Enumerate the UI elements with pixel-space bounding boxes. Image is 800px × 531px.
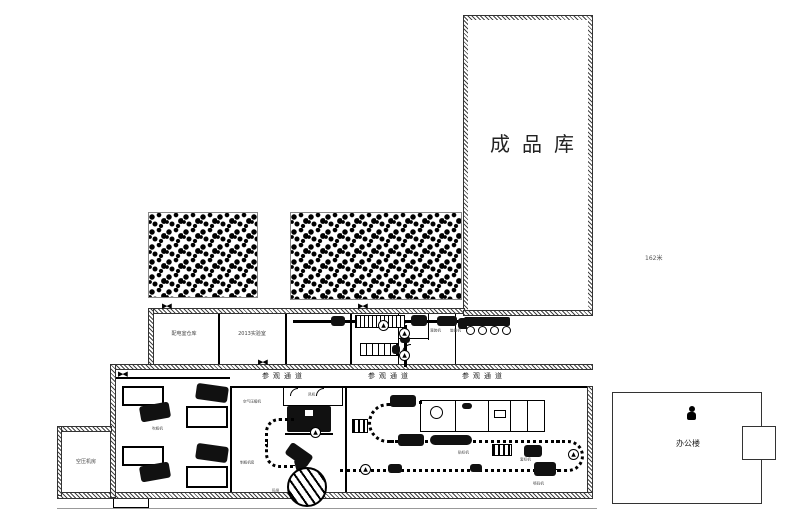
lowerhall-right-wall	[587, 386, 593, 498]
filling-block-divider	[527, 400, 528, 432]
line-machine-c	[430, 435, 472, 445]
filling-block-divider	[455, 400, 456, 432]
person-icon	[687, 412, 696, 420]
wing-top-wall	[57, 426, 112, 432]
coder-machine	[534, 462, 556, 476]
molding-machine-4-head	[195, 443, 229, 463]
direction-arrow-icon: ▲	[360, 464, 371, 475]
air-compressor-label: 空气压缩机	[243, 399, 261, 404]
filling-block-circle	[430, 406, 443, 419]
line-machine-d	[470, 464, 482, 472]
double-door-icon: ▶◀	[258, 359, 267, 366]
machinearea-top-wall	[116, 377, 230, 379]
partition-1	[218, 314, 220, 364]
landscaping-area-right	[290, 212, 462, 300]
lab-room-label: 2013实验室	[220, 330, 284, 337]
warehouse-bottom-wall	[463, 310, 593, 316]
molding-machine-2	[186, 406, 228, 428]
coder-label: 喷码机	[533, 481, 544, 486]
threshold-step	[113, 499, 149, 508]
truck-wheel	[478, 326, 487, 335]
midband-machine-1	[331, 316, 345, 326]
double-door-icon: ▶◀	[358, 303, 367, 310]
sleeve-machine	[524, 445, 542, 457]
line-machine-e	[388, 464, 402, 473]
midband-bottom-wall	[110, 364, 593, 370]
direction-arrow-icon: ▲	[310, 427, 321, 438]
filling-block-divider	[488, 400, 489, 432]
truck-wheel	[466, 326, 475, 335]
truck-wheel	[490, 326, 499, 335]
filling-block-divider	[510, 400, 511, 432]
truck-body	[464, 317, 510, 326]
dimension-note: 162米	[645, 253, 662, 262]
filling-block-unit	[462, 403, 472, 409]
palletizer-label: 码垛	[272, 488, 279, 493]
line-machine-b	[398, 434, 424, 446]
direction-arrow-icon: ▲	[399, 350, 410, 361]
corridor-label-1: 参观通道	[262, 371, 306, 381]
corridor-label-3: 参观通道	[462, 371, 506, 381]
midband-machine-3	[437, 316, 457, 326]
sleeve-machine-label: 套标机	[520, 457, 531, 462]
blowroom-right-wall	[345, 388, 347, 492]
office-annex	[742, 426, 776, 460]
midband-machine-2	[411, 315, 427, 326]
case-packer	[352, 419, 368, 433]
compressor-wing-label: 空压机房	[64, 458, 108, 465]
direction-arrow-icon: ▲	[399, 328, 410, 339]
fan-room-label: 风机	[308, 392, 315, 397]
blow-molding-room-label: 制瓶机房	[240, 460, 254, 465]
power-room-label: 配电室仓库	[152, 330, 216, 337]
filling-machine-label: 灌装机	[430, 328, 441, 333]
molding-machine-4	[186, 466, 228, 488]
palletizer-turntable	[287, 467, 327, 507]
labeling-machine	[492, 444, 512, 456]
labeling-machine-label: 贴标机	[458, 450, 469, 455]
machinearea-right-wall	[230, 388, 232, 492]
warehouse-interior	[468, 20, 588, 310]
compressor-unit-panel	[305, 410, 313, 416]
double-door-icon: ▶◀	[162, 303, 171, 310]
line-machine-a	[390, 395, 416, 407]
midband-top-wall	[148, 308, 465, 314]
corridor-label-2: 参观通道	[368, 371, 412, 381]
floor-plan-canvas: 成品库 162米 ▶◀ ▶◀ ▶◀ ▶◀ 配电室仓库 2013实验室 灌装机 旋…	[0, 0, 800, 531]
partition-2	[285, 314, 287, 364]
landscaping-area-left	[148, 212, 258, 298]
partition-5	[428, 314, 429, 340]
molding-machine-2-head	[195, 383, 229, 403]
midband-left-wall	[148, 308, 154, 368]
filling-block-tray	[494, 410, 506, 418]
direction-arrow-icon: ▲	[378, 320, 389, 331]
direction-arrow-icon: ▲	[568, 449, 579, 460]
warehouse-label: 成品库	[472, 128, 592, 157]
conveyor-uturn-left	[368, 403, 394, 443]
truck-wheel	[502, 326, 511, 335]
scurve-conveyor-top	[265, 418, 295, 444]
conveyor-bottom-run	[340, 469, 560, 472]
wing-left-wall	[57, 426, 62, 496]
office-label: 办公楼	[648, 438, 728, 449]
ground-line	[57, 508, 597, 509]
blow-machine-label: 吹瓶机	[152, 426, 163, 431]
